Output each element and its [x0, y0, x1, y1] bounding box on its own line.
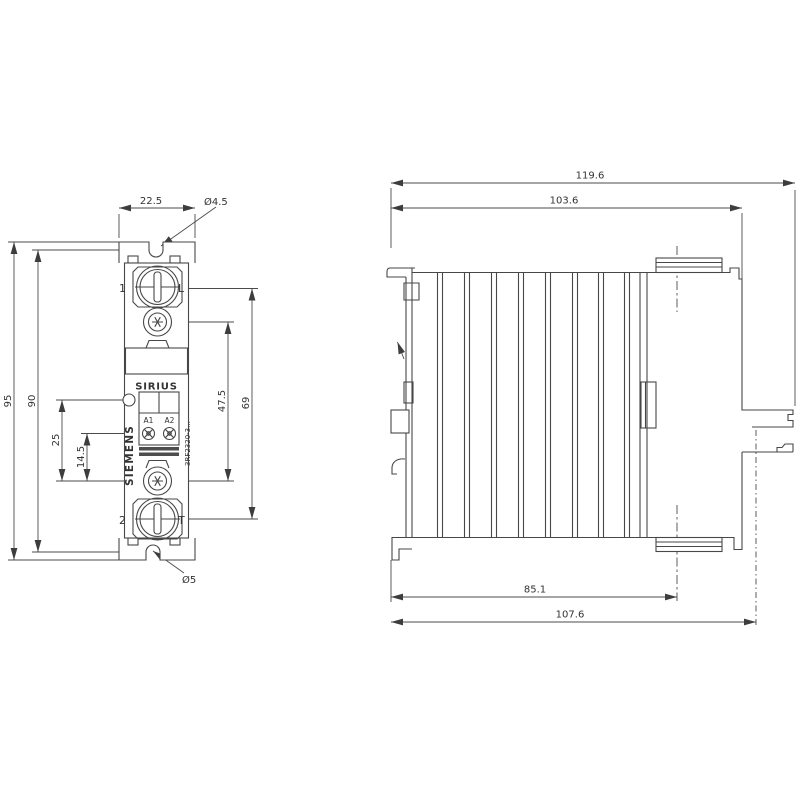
screw-slot-top: [154, 272, 161, 302]
din-spring-box: [391, 410, 409, 433]
label-window: [126, 348, 188, 374]
technical-drawing-page: 22.5 Ø4.5 Ø5 95 90 25 14.5 47.5 69 1 L 2…: [0, 0, 800, 800]
dim-hole-spacing-label: 90: [27, 395, 38, 408]
dim-width-label: 22.5: [140, 196, 162, 207]
din-clip-hook: [392, 459, 405, 474]
dim-body-depth-label: 103.6: [550, 196, 579, 207]
terminal-cover-top: [656, 258, 722, 273]
dimension-drawing: 22.5 Ø4.5 Ø5 95 90 25 14.5 47.5 69 1 L 2…: [0, 0, 800, 800]
hole-top-leader: [161, 207, 216, 246]
dim-led-offset-label: 25: [51, 434, 62, 447]
dim-screw-center-label: 85.1: [524, 585, 546, 596]
heatsink: [412, 273, 656, 538]
terminal-line-label: L: [178, 282, 185, 295]
dim-overall-depth-label: 119.6: [576, 171, 605, 182]
side-extension-lines: [391, 188, 795, 626]
side-view: 119.6 103.6 85.1 107.6: [387, 171, 795, 627]
screw-slot-bottom: [154, 504, 161, 534]
side-dimension-lines-top: [391, 183, 795, 208]
housing-mid-box: [641, 382, 656, 428]
a1-label: A1: [144, 416, 154, 425]
dim-hole-bottom-label: Ø5: [182, 574, 196, 586]
housing-side: [641, 268, 793, 550]
dim-terminal-span-label: 69: [241, 397, 252, 410]
terminal-cover-bottom: [656, 538, 722, 552]
din-rail-plate: [387, 268, 419, 560]
front-width-dimension: [119, 208, 195, 238]
terminal-1-label: 1: [119, 282, 126, 295]
dim-overall-height-label: 95: [3, 395, 14, 408]
status-led: [123, 394, 135, 406]
terminal-2-label: 2: [119, 514, 126, 527]
siemens-logo: SIEMENS: [124, 425, 136, 486]
heatsink-fins: [438, 273, 630, 538]
plate-foot: [392, 538, 412, 561]
clip-release-arrow: [398, 342, 405, 359]
product-code: 3RF2320-3...: [184, 421, 192, 466]
dim-hole-top-label: Ø4.5: [204, 196, 228, 208]
dim-screw-spacing-label: 47.5: [217, 390, 228, 412]
terminal-load-label: T: [177, 514, 185, 527]
dim-coil-offset-label: 14.5: [76, 446, 87, 468]
sirius-logo: SIRIUS: [135, 382, 177, 393]
a2-label: A2: [165, 416, 175, 425]
front-view: 22.5 Ø4.5 Ø5 95 90 25 14.5 47.5 69 1 L 2…: [3, 196, 258, 586]
dim-base-depth-label: 107.6: [556, 610, 585, 621]
